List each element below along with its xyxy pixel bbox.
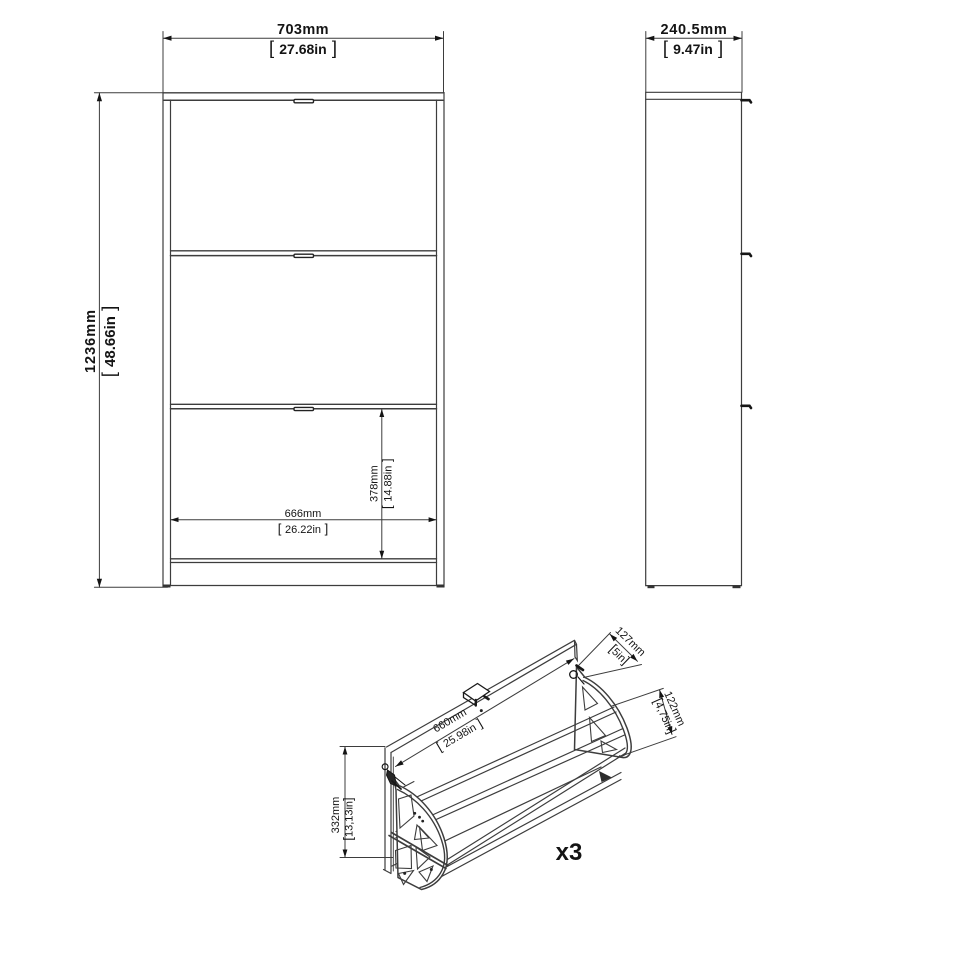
svg-text:1236mm: 1236mm: [83, 309, 99, 373]
svg-text:703mm: 703mm: [277, 22, 329, 38]
svg-text:240.5mm: 240.5mm: [661, 22, 728, 38]
svg-text:[ 14.88in ]: [ 14.88in ]: [380, 458, 395, 509]
svg-text:[13,13in]: [13,13in]: [341, 797, 356, 840]
svg-text:378mm: 378mm: [369, 465, 381, 502]
svg-text:[ 48.66in ]: [ 48.66in ]: [98, 306, 119, 377]
svg-text:[ 9.47in ]: [ 9.47in ]: [663, 37, 723, 58]
svg-text:666mm: 666mm: [285, 508, 322, 520]
svg-text:[ 26.22in ]: [ 26.22in ]: [278, 521, 329, 536]
svg-text:332mm: 332mm: [330, 797, 342, 834]
svg-text:[ 27.68in ]: [ 27.68in ]: [269, 37, 337, 58]
svg-text:x3: x3: [556, 839, 583, 866]
